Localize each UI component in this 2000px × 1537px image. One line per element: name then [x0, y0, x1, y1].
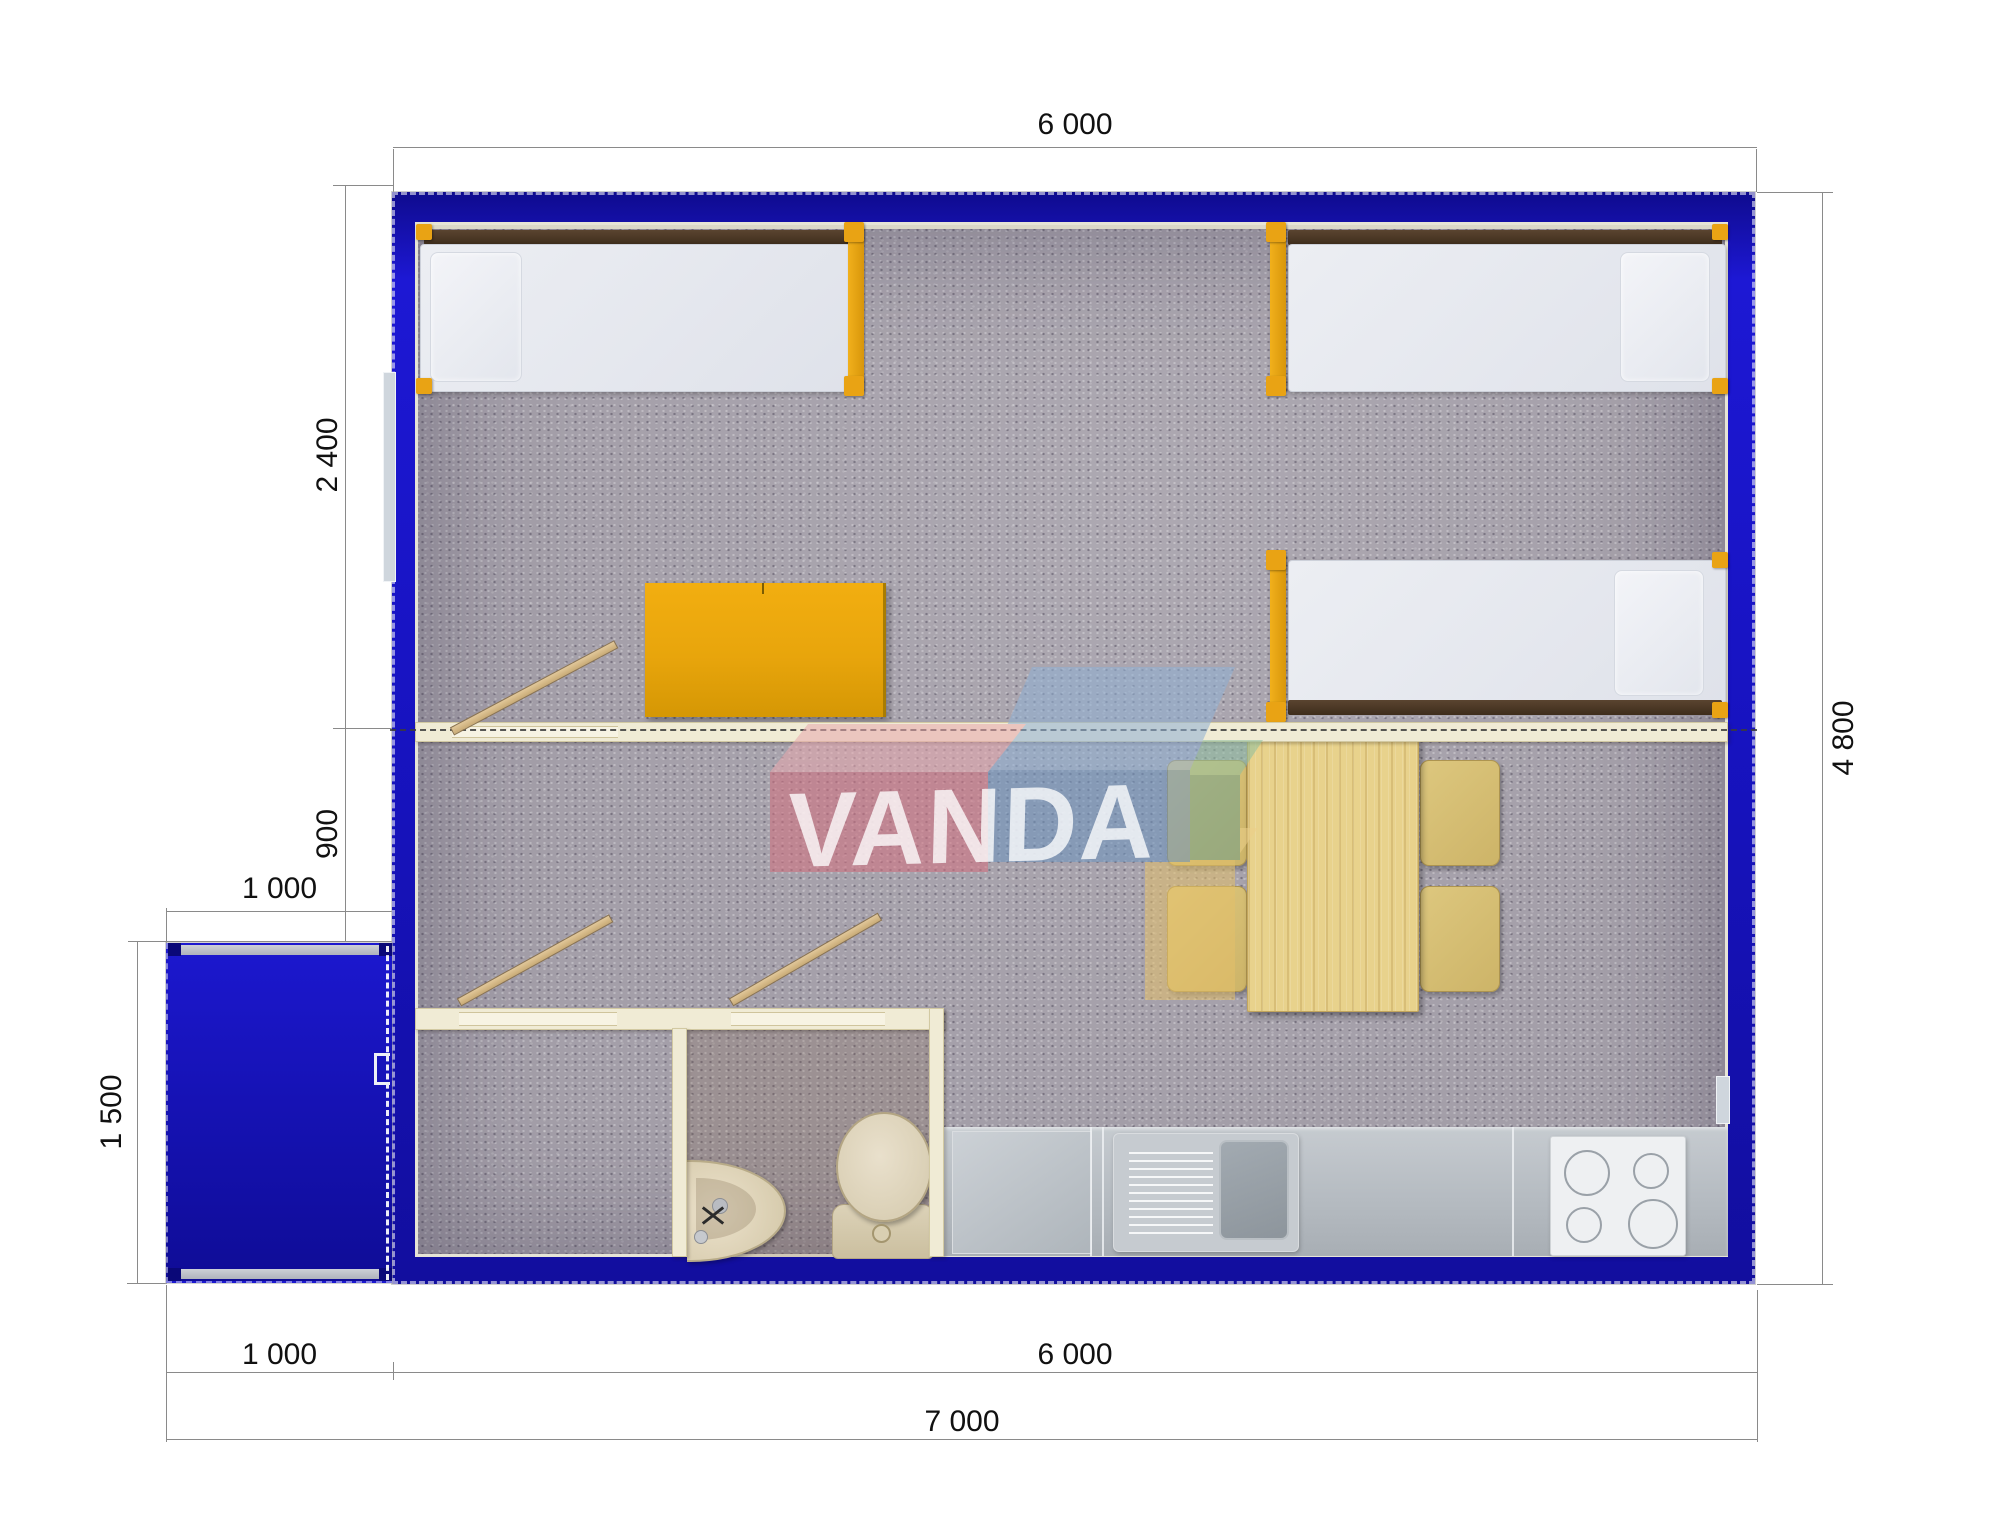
bed-pillow	[1620, 252, 1710, 382]
dim-label-bottom-porch: 1 000	[166, 1338, 393, 1372]
bed-footboard	[1270, 554, 1286, 718]
bed-corner-post	[1266, 702, 1286, 722]
kitchen-sink-basin	[1219, 1140, 1289, 1240]
door-opening-partition	[452, 726, 618, 738]
bed-corner-post	[416, 378, 432, 394]
bed-headboard	[1288, 230, 1722, 245]
chair-top-left	[1167, 760, 1247, 866]
bed-corner-post	[844, 222, 864, 242]
counter-seam	[1102, 1127, 1104, 1256]
stove-burner	[1628, 1199, 1678, 1249]
dim-line-top-width	[393, 147, 1757, 148]
bed-top-left	[418, 224, 866, 396]
dim-line-bottom-total	[166, 1439, 1758, 1440]
stove-burner	[1564, 1150, 1610, 1196]
bathroom-wall-left	[672, 1028, 687, 1257]
stove	[1550, 1136, 1686, 1256]
dim-label-porch-height: 1 500	[95, 1074, 129, 1149]
bed-footboard	[1270, 226, 1286, 392]
bed-corner-post	[844, 376, 864, 396]
kitchen-sink-drainboard	[1129, 1146, 1213, 1238]
dim-label-bottom-total: 7 000	[166, 1405, 1758, 1439]
dim-line-right-height	[1822, 192, 1823, 1284]
dining-table	[1247, 738, 1419, 1012]
entry-door-opening-line	[386, 946, 389, 1280]
dim-line-porch-width	[166, 911, 393, 912]
dim-label-left-mid: 900	[311, 809, 345, 859]
porch-corner-post	[168, 1268, 181, 1281]
window-left-wall	[383, 372, 396, 582]
dim-ext-line	[393, 149, 394, 192]
bed-pillow	[1614, 570, 1704, 696]
bed-headboard	[1288, 700, 1722, 715]
bed-corner-post	[1712, 552, 1728, 568]
window-right-wall	[1716, 1076, 1730, 1124]
dim-label-top-width: 6 000	[393, 108, 1757, 142]
dim-line-bottom-chain	[166, 1372, 1758, 1373]
bed-headboard	[424, 230, 852, 245]
porch-corner-post	[168, 943, 181, 956]
bathroom-wall-right	[929, 1008, 944, 1257]
bed-corner-post	[1266, 222, 1286, 242]
module-joint-dashed-line	[390, 729, 1757, 731]
dim-label-porch-width: 1 000	[166, 872, 393, 906]
toilet-flush-button	[872, 1224, 891, 1243]
bed-pillow	[430, 252, 522, 382]
door-opening-bathroom	[731, 1012, 885, 1026]
dim-label-left-upper: 2 400	[311, 417, 345, 492]
bed-corner-post	[1266, 550, 1286, 570]
dim-ext-line	[1756, 149, 1757, 192]
bed-corner-post	[1712, 224, 1728, 240]
dim-ext-line	[1757, 1284, 1833, 1285]
bed-footboard	[848, 226, 864, 392]
bed-corner-post	[1266, 376, 1286, 396]
chair-top-right	[1420, 760, 1500, 866]
wardrobe	[645, 583, 886, 717]
counter-seam	[1512, 1127, 1514, 1256]
porch-deck-edge-top	[176, 945, 382, 955]
faucet-knob	[694, 1230, 708, 1244]
wardrobe-door-split	[762, 583, 764, 594]
dim-ext-line	[127, 1283, 167, 1284]
chair-bottom-right	[1420, 886, 1500, 992]
bed-middle-right	[1270, 552, 1726, 720]
dim-label-bottom-main: 6 000	[393, 1338, 1757, 1372]
dim-ext-line	[166, 908, 167, 943]
dim-line-porch-height	[137, 941, 138, 1283]
dim-ext-line	[333, 185, 393, 186]
door-opening-closet	[459, 1012, 617, 1026]
porch-deck-edge-bottom	[176, 1269, 382, 1279]
entry-door-handle-icon	[374, 1053, 390, 1085]
bed-corner-post	[1712, 702, 1728, 718]
dim-line-left-upper	[345, 185, 346, 941]
counter-seam	[1090, 1127, 1092, 1256]
chair-bottom-left	[1167, 886, 1247, 992]
bed-top-right	[1270, 224, 1726, 396]
toilet-lid	[836, 1112, 932, 1222]
stove-burner	[1566, 1207, 1602, 1243]
bed-corner-post	[416, 224, 432, 240]
dim-label-right-height: 4 800	[1827, 700, 1861, 775]
entrance-porch	[166, 943, 392, 1283]
kitchen-appliance-panel	[952, 1131, 1092, 1254]
dim-ext-line	[128, 941, 393, 942]
floor-plan-canvas: 6 000 2 400 900 1 500 1 000 1 000 6 000 …	[0, 0, 2000, 1537]
bed-corner-post	[1712, 378, 1728, 394]
stove-burner	[1633, 1153, 1669, 1189]
